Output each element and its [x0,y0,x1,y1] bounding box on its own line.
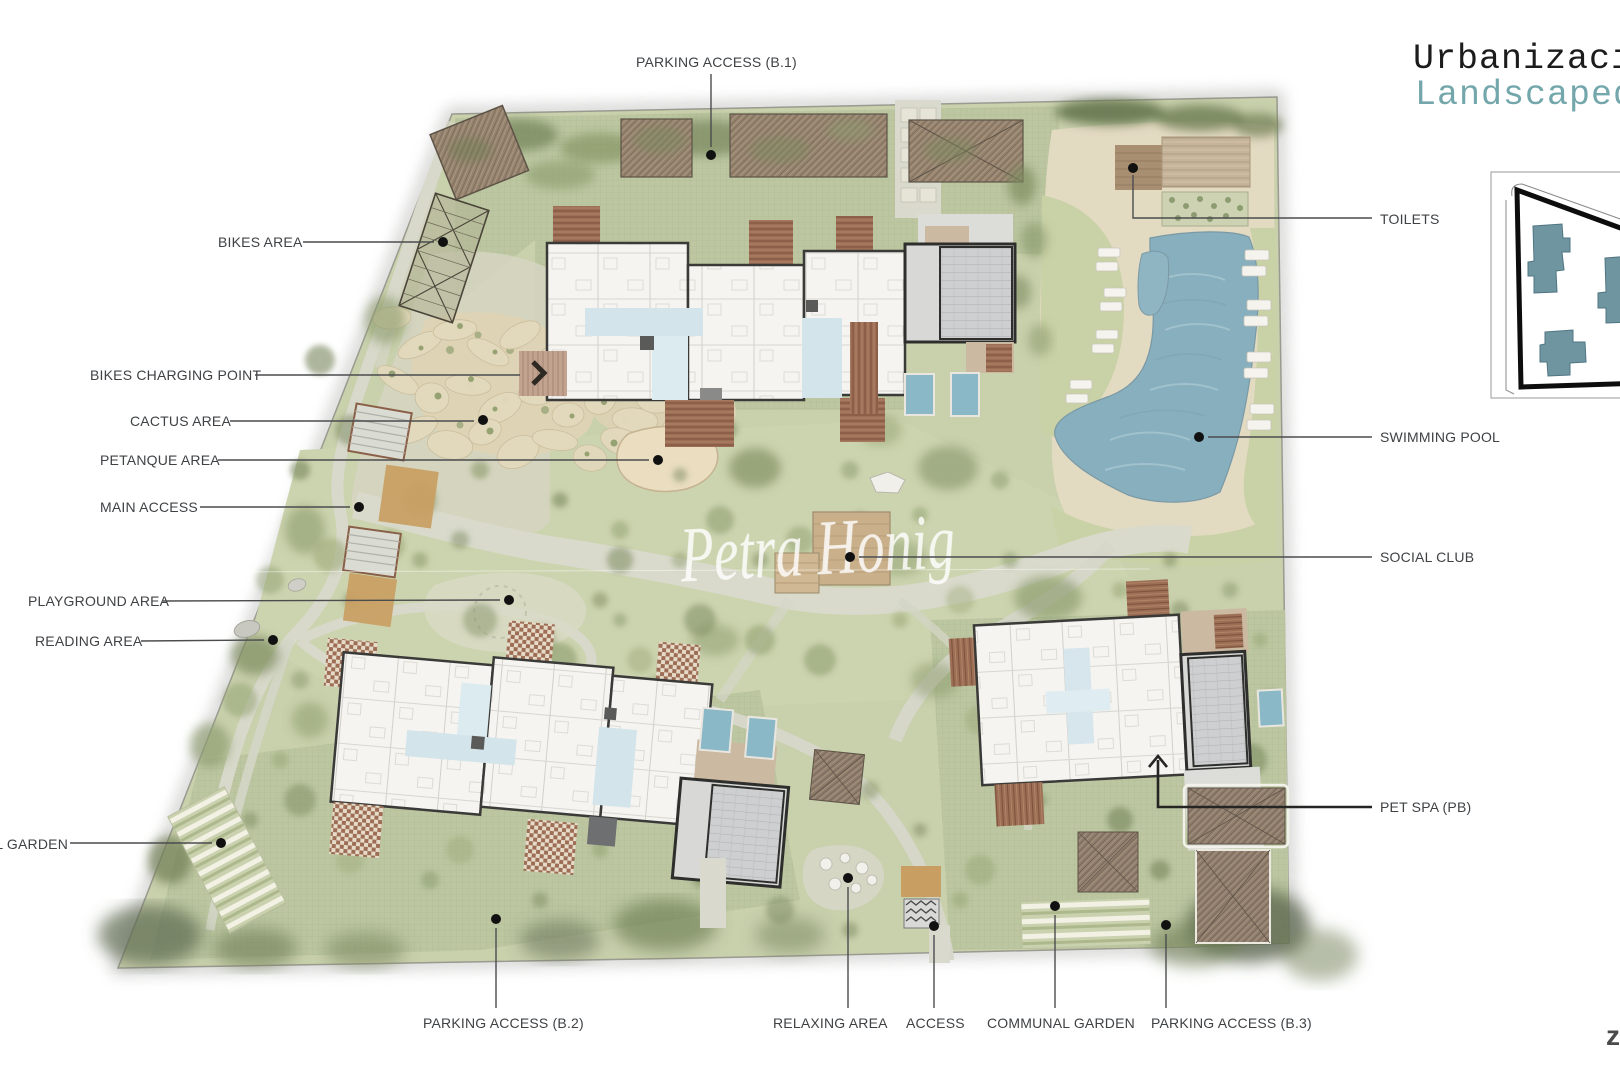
svg-text:BIKES CHARGING POINT: BIKES CHARGING POINT [90,367,261,383]
svg-text:COMMUNAL GARDEN: COMMUNAL GARDEN [987,1015,1135,1031]
svg-text:PETANQUE AREA: PETANQUE AREA [100,452,220,468]
svg-text:SWIMMING POOL: SWIMMING POOL [1380,429,1500,445]
svg-text:PARKING ACCESS (B.3): PARKING ACCESS (B.3) [1151,1015,1312,1031]
svg-text:RELAXING AREA: RELAXING AREA [773,1015,888,1031]
svg-text:PLAYGROUND AREA: PLAYGROUND AREA [28,593,170,609]
svg-text:Landscaped: Landscaped [1415,75,1620,115]
svg-text:COMMUNAL GARDEN: COMMUNAL GARDEN [0,836,68,852]
svg-text:MAIN ACCESS: MAIN ACCESS [100,499,198,515]
svg-text:READING AREA: READING AREA [35,633,143,649]
svg-text:Petra Honig: Petra Honig [677,497,957,598]
svg-text:ACCESS: ACCESS [906,1015,965,1031]
svg-text:CACTUS AREA: CACTUS AREA [130,413,231,429]
svg-text:PARKING ACCESS (B.1): PARKING ACCESS (B.1) [636,54,797,70]
svg-text:PET SPA (PB): PET SPA (PB) [1380,799,1471,815]
svg-text:BIKES AREA: BIKES AREA [218,234,303,250]
svg-text:z: z [1606,1020,1620,1051]
svg-text:Urbanizaci: Urbanizaci [1413,39,1620,79]
svg-text:SOCIAL CLUB: SOCIAL CLUB [1380,549,1474,565]
svg-text:TOILETS: TOILETS [1380,211,1440,227]
svg-text:PARKING ACCESS (B.2): PARKING ACCESS (B.2) [423,1015,584,1031]
